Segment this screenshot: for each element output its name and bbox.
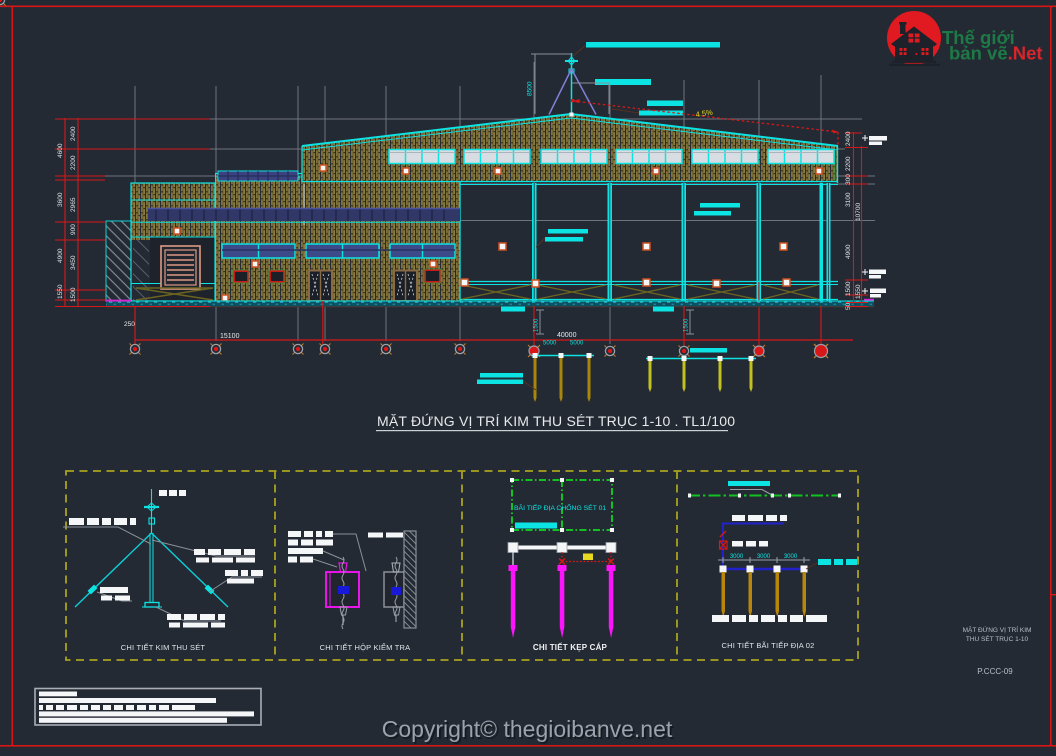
svg-text:MẶT ĐỨNG VỊ TRÍ KIM: MẶT ĐỨNG VỊ TRÍ KIM <box>963 625 1032 634</box>
svg-text:40000: 40000 <box>557 332 577 339</box>
svg-text:CHI TIẾT KẸP CÁP: CHI TIẾT KẸP CÁP <box>533 642 608 652</box>
svg-text:250: 250 <box>124 321 135 328</box>
svg-text:THU SÉT TRỤC 1-10: THU SÉT TRỤC 1-10 <box>966 634 1029 643</box>
svg-text:10700: 10700 <box>855 203 862 221</box>
svg-text:3000: 3000 <box>757 554 771 560</box>
svg-text:2400: 2400 <box>845 131 852 146</box>
svg-text:3000: 3000 <box>784 554 798 560</box>
svg-text:CHI TIẾT KIM THU SÉT: CHI TIẾT KIM THU SÉT <box>121 642 206 652</box>
svg-text:2965: 2965 <box>70 197 77 212</box>
svg-text:1550: 1550 <box>855 284 862 299</box>
svg-text:1500: 1500 <box>684 318 690 332</box>
svg-text:2200: 2200 <box>70 155 77 170</box>
svg-text:50: 50 <box>845 302 852 310</box>
svg-text:4600: 4600 <box>57 143 64 158</box>
svg-text:2400: 2400 <box>70 126 77 141</box>
svg-text:CHI TIẾT BÃI TIẾP ĐỊA 02: CHI TIẾT BÃI TIẾP ĐỊA 02 <box>721 640 814 650</box>
svg-text:1550: 1550 <box>57 284 64 299</box>
svg-text:5000: 5000 <box>543 341 557 347</box>
svg-text:3450: 3450 <box>70 255 77 270</box>
svg-text:P.CCC-09: P.CCC-09 <box>977 667 1013 676</box>
svg-text:1500: 1500 <box>534 318 540 332</box>
svg-text:1500: 1500 <box>70 287 77 302</box>
svg-text:2200: 2200 <box>845 156 852 171</box>
svg-text:CHI TIẾT HỘP KIỂM TRA: CHI TIẾT HỘP KIỂM TRA <box>320 642 411 652</box>
svg-text:bản vẽ.Net: bản vẽ.Net <box>949 43 1043 64</box>
svg-text:5000: 5000 <box>570 341 584 347</box>
svg-text:3600: 3600 <box>57 192 64 207</box>
svg-text:3000: 3000 <box>730 554 744 560</box>
svg-text:300: 300 <box>845 174 852 185</box>
svg-text:3100: 3100 <box>845 192 852 207</box>
svg-text:4900: 4900 <box>845 244 852 259</box>
svg-text:Copyright© thegioibanve.net: Copyright© thegioibanve.net <box>382 716 673 742</box>
svg-text:4900: 4900 <box>57 248 64 263</box>
svg-text:8500: 8500 <box>527 81 534 96</box>
svg-text:15100: 15100 <box>220 333 240 340</box>
svg-text:MẶT ĐỨNG VỊ TRÍ KIM THU SÉT TR: MẶT ĐỨNG VỊ TRÍ KIM THU SÉT TRỤC 1-10 . … <box>377 413 735 429</box>
svg-text:1500: 1500 <box>845 281 852 296</box>
svg-text:900: 900 <box>70 224 77 235</box>
